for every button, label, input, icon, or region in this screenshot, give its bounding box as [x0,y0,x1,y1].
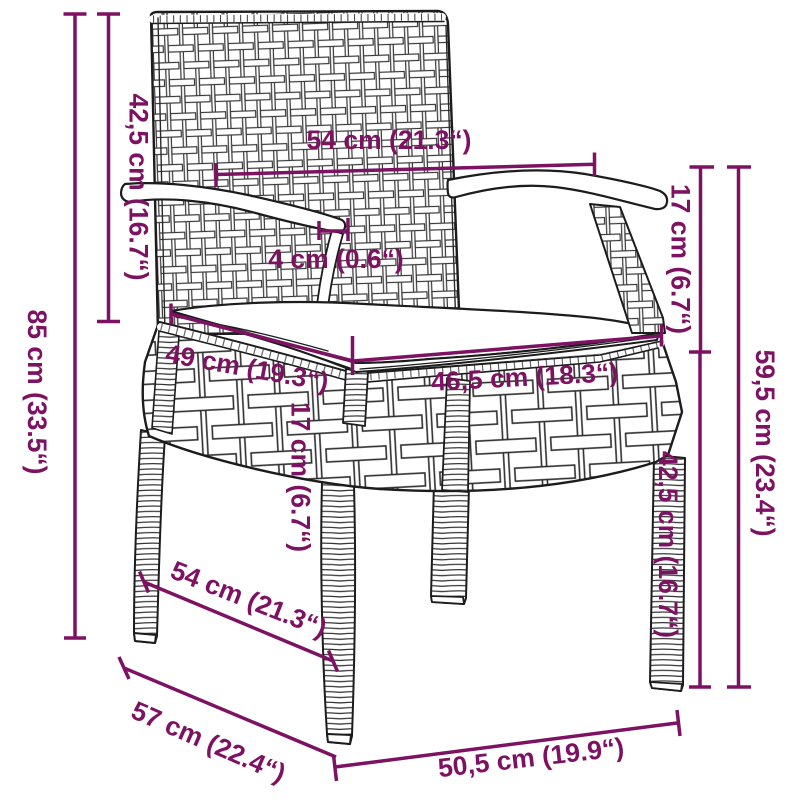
svg-text:17 cm (6.7“): 17 cm (6.7“) [286,402,316,552]
svg-text:59,5 cm (23.4“): 59,5 cm (23.4“) [750,349,780,536]
svg-text:42,5 cm (16.7“): 42,5 cm (16.7“) [124,93,154,280]
svg-text:54 cm (21.3“): 54 cm (21.3“) [167,555,331,643]
svg-text:57 cm (22.4“): 57 cm (22.4“) [127,695,290,788]
svg-text:4 cm (0.6“): 4 cm (0.6“) [268,244,404,274]
svg-text:50,5 cm (19.9“): 50,5 cm (19.9“) [436,732,625,783]
svg-text:85 cm (33.5“): 85 cm (33.5“) [22,310,52,475]
svg-text:54 cm (21.3“): 54 cm (21.3“) [307,125,472,155]
svg-text:17 cm (6.7“): 17 cm (6.7“) [666,184,696,334]
svg-text:42,5 cm (16.7“): 42,5 cm (16.7“) [653,451,683,638]
